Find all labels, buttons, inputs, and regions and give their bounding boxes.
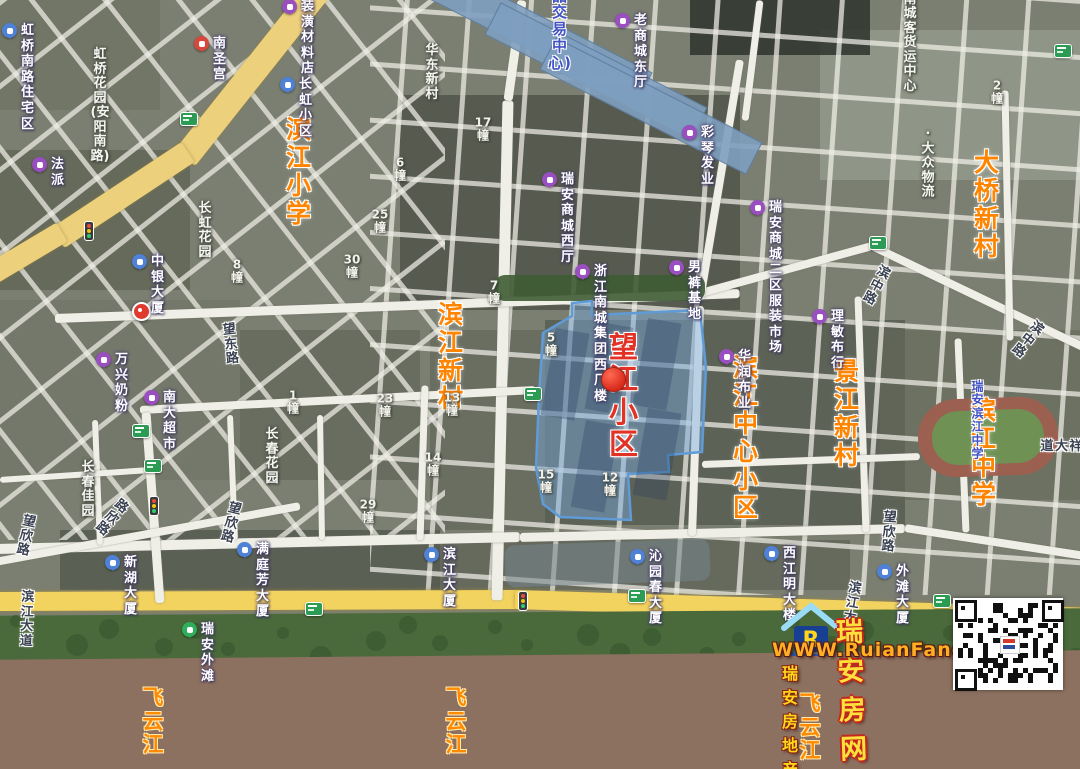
poi-label: 中银大厦 bbox=[132, 254, 164, 316]
bus-stop-icon bbox=[180, 112, 198, 126]
poi-label-text: 装潢材料店 bbox=[301, 0, 314, 77]
qr-module bbox=[968, 623, 973, 628]
place-label: 虹桥花园 (安阳南路) bbox=[91, 48, 110, 164]
tree bbox=[155, 638, 173, 656]
poi-label: 南圣宫 bbox=[194, 36, 226, 83]
qr-module bbox=[1018, 658, 1023, 663]
building-number-label: 5幢 bbox=[545, 332, 557, 359]
place-label: 华东新村 bbox=[425, 44, 438, 102]
qr-module bbox=[1013, 618, 1018, 623]
place-label: 长春佳园 bbox=[81, 461, 94, 519]
building-number-label: 13幢 bbox=[444, 392, 461, 419]
tree bbox=[66, 634, 88, 656]
qr-module bbox=[1023, 618, 1028, 623]
poi-building-icon bbox=[237, 542, 252, 557]
poi-label-text: 南圣宫 bbox=[213, 36, 226, 83]
qr-module bbox=[1053, 668, 1058, 673]
poi-shop-icon bbox=[750, 200, 765, 215]
place-label: 长虹花园 bbox=[198, 202, 211, 260]
street-name-label: 滨江大道 bbox=[19, 591, 36, 650]
tree bbox=[399, 616, 417, 634]
poi-shop-icon bbox=[812, 309, 827, 324]
river-label: 飞云江 bbox=[446, 687, 471, 758]
qr-module bbox=[968, 633, 973, 638]
poi-label-text: 滨江大厦 bbox=[443, 547, 456, 609]
qr-module bbox=[1023, 653, 1028, 658]
poi-label-text: 理敏布行 bbox=[831, 309, 844, 371]
poi-building-icon bbox=[2, 23, 17, 38]
poi-building-icon bbox=[280, 77, 295, 92]
poi-label-text: 瑞安商城西厅 bbox=[561, 172, 574, 266]
qr-module bbox=[1033, 653, 1038, 658]
tree bbox=[99, 619, 119, 639]
place-label: · 大众物流 bbox=[922, 128, 935, 201]
poi-label-text: 中银大厦 bbox=[151, 254, 164, 316]
poi-label: 瑞安外滩 bbox=[182, 622, 214, 684]
qr-module bbox=[1053, 638, 1058, 643]
poi-label: 男裤基地 bbox=[669, 260, 701, 322]
poi-label: 彩琴发业 bbox=[682, 125, 714, 187]
poi-label: 装潢材料店 bbox=[282, 0, 314, 77]
traffic-light-icon bbox=[84, 221, 94, 241]
river-label: 飞云江 bbox=[800, 693, 825, 764]
poi-scenic-icon bbox=[182, 622, 197, 637]
qr-finder-pattern bbox=[1042, 600, 1064, 622]
bus-stop-icon bbox=[933, 594, 951, 608]
poi-label: 华润布业 bbox=[719, 349, 751, 411]
building-number-label: 30幢 bbox=[344, 254, 361, 281]
qr-code bbox=[953, 598, 1063, 690]
building-number-label: 25幢 bbox=[372, 209, 389, 236]
poi-shop-icon bbox=[144, 390, 159, 405]
tree bbox=[366, 631, 386, 651]
poi-shop-icon bbox=[615, 13, 630, 28]
street-name-label: 瑞祥大道 bbox=[1037, 439, 1080, 456]
traffic-light-icon bbox=[518, 591, 528, 611]
poi-label-text: 沁园春大厦 bbox=[649, 549, 662, 627]
qr-module bbox=[978, 618, 983, 623]
street-grid-line bbox=[776, 0, 865, 595]
tree bbox=[521, 639, 533, 651]
traffic-light-icon bbox=[149, 496, 159, 516]
tree bbox=[643, 628, 661, 646]
qr-module bbox=[1028, 678, 1033, 683]
street-name-label: 望欣路 bbox=[881, 511, 899, 556]
qr-module bbox=[1023, 643, 1028, 648]
poi-label-text: 南大超市 bbox=[163, 390, 176, 452]
poi-label: 法派 bbox=[32, 157, 64, 188]
building-number-label: 6幢 bbox=[394, 157, 406, 184]
poi-building-icon bbox=[424, 547, 439, 562]
tree bbox=[221, 642, 235, 656]
poi-label-text: 法派 bbox=[51, 157, 64, 188]
qr-module bbox=[1028, 628, 1033, 633]
tree bbox=[577, 624, 599, 646]
building-number-label: 15幢 bbox=[538, 469, 555, 496]
poi-label: 外滩大厦 bbox=[877, 564, 909, 626]
poi-label: 理敏布行 bbox=[812, 309, 844, 371]
building-number-label: 7幢 bbox=[488, 280, 500, 307]
qr-module bbox=[1023, 633, 1028, 638]
qr-finder-pattern bbox=[955, 669, 977, 691]
qr-module bbox=[1048, 648, 1053, 653]
building-number-label: 8幢 bbox=[231, 259, 243, 286]
tree bbox=[732, 632, 746, 646]
poi-label-text: 满庭芳大厦 bbox=[256, 542, 269, 620]
place-label: · 南城客货运中心 bbox=[904, 0, 917, 94]
poi-shop-icon bbox=[542, 172, 557, 187]
brand-site-name: 瑞安房网 bbox=[835, 610, 871, 767]
brand-tagline: 瑞安房地产门户网站 bbox=[782, 660, 802, 769]
building-number-label: 29幢 bbox=[360, 499, 377, 526]
poi-temple-icon bbox=[194, 36, 209, 51]
qr-module bbox=[958, 623, 963, 628]
qr-module bbox=[1013, 678, 1018, 683]
poi-building-icon bbox=[105, 555, 120, 570]
qr-module bbox=[958, 653, 963, 658]
bus-stop-icon bbox=[1054, 44, 1072, 58]
building-number-label: 17幢 bbox=[475, 117, 492, 144]
poi-label-text: 瑞安商城 二区服装市场 bbox=[769, 200, 782, 356]
qr-module bbox=[998, 673, 1003, 678]
poi-label-text: 彩琴发业 bbox=[701, 125, 714, 187]
poi-label-text: 外滩大厦 bbox=[896, 564, 909, 626]
poi-shop-icon bbox=[282, 0, 297, 14]
highlighted-area-label: 望江小区 bbox=[609, 331, 641, 461]
bus-stop-icon bbox=[305, 602, 323, 616]
poi-label: 瑞安商城西厅 bbox=[542, 172, 574, 266]
poi-label: 满庭芳大厦 bbox=[237, 542, 269, 620]
bus-stop-icon bbox=[869, 236, 887, 250]
poi-shop-icon bbox=[719, 349, 734, 364]
poi-shop-icon bbox=[669, 260, 684, 275]
poi-building-icon bbox=[132, 254, 147, 269]
qr-center-logo bbox=[1000, 636, 1020, 654]
qr-module bbox=[1048, 678, 1053, 683]
poi-label-text: 瑞安外滩 bbox=[201, 622, 214, 684]
qr-module bbox=[1018, 673, 1023, 678]
qr-module bbox=[1028, 613, 1033, 618]
satellite-map[interactable]: 滨江小学大桥新村滨江新村滨江中心 小区景江新村滨江中学望江小区飞云江飞云江飞云江… bbox=[0, 0, 1080, 769]
poi-shop-icon bbox=[96, 352, 111, 367]
poi-label: 沁园春大厦 bbox=[630, 549, 662, 627]
qr-module bbox=[1038, 633, 1043, 638]
tree bbox=[432, 635, 448, 651]
qr-module bbox=[1053, 623, 1058, 628]
poi-label-text: 华润布业 bbox=[738, 349, 751, 411]
tree bbox=[277, 627, 289, 639]
landmark-label: (小商品交易中心) bbox=[548, 0, 572, 72]
building-number-label: 2幢 bbox=[991, 80, 1003, 107]
building-number-label: 12幢 bbox=[602, 472, 619, 499]
poi-label: 老商城东厅 bbox=[615, 13, 647, 91]
qr-module bbox=[1003, 663, 1008, 668]
place-label: 长春花园 bbox=[265, 428, 278, 486]
building-number-label: 1幢 bbox=[287, 390, 299, 417]
district-label: 大桥新村 bbox=[974, 149, 1002, 261]
poi-label: 滨江大厦 bbox=[424, 547, 456, 609]
canal bbox=[504, 538, 710, 587]
poi-label-text: 长虹小区 bbox=[299, 77, 312, 139]
poi-label: 南大超市 bbox=[144, 390, 176, 452]
landmark-label: 瑞安滨江中学 bbox=[971, 381, 984, 462]
qr-finder-pattern bbox=[955, 600, 977, 622]
poi-shop-icon bbox=[32, 157, 47, 172]
qr-module bbox=[983, 678, 988, 683]
poi-building-icon bbox=[877, 564, 892, 579]
qr-module bbox=[988, 668, 993, 673]
bus-stop-icon bbox=[524, 387, 542, 401]
selected-location-marker[interactable] bbox=[601, 367, 626, 392]
poi-label-text: 虹桥南路住宅区 bbox=[21, 23, 34, 132]
poi-shop-icon bbox=[575, 264, 590, 279]
poi-label-text: 万兴奶粉 bbox=[115, 352, 128, 414]
bus-stop-icon bbox=[144, 459, 162, 473]
poi-label: 长虹小区 bbox=[280, 77, 312, 139]
poi-label-text: 男裤基地 bbox=[688, 260, 701, 322]
poi-shop-icon bbox=[682, 125, 697, 140]
qr-module bbox=[1033, 603, 1038, 608]
poi-label: 虹桥南路住宅区 bbox=[2, 23, 34, 132]
poi-label: 新湖大厦 bbox=[105, 555, 137, 617]
building-number-label: 14幢 bbox=[425, 452, 442, 479]
poi-building-icon bbox=[764, 546, 779, 561]
tree bbox=[488, 620, 502, 634]
poi-label-text: 老商城东厅 bbox=[634, 13, 647, 91]
qr-module bbox=[993, 678, 998, 683]
qr-module bbox=[968, 653, 973, 658]
poi-label-text: 新湖大厦 bbox=[124, 555, 137, 617]
street-grid-line bbox=[370, 540, 1080, 595]
poi-label: 瑞安商城 二区服装市场 bbox=[750, 200, 782, 356]
poi-building-icon bbox=[630, 549, 645, 564]
building-number-label: 23幢 bbox=[377, 393, 394, 420]
district-label: 景江新村 bbox=[834, 358, 862, 470]
poi-label: 万兴奶粉 bbox=[96, 352, 128, 414]
river-label: 飞云江 bbox=[143, 687, 168, 758]
qr-module bbox=[993, 628, 998, 633]
